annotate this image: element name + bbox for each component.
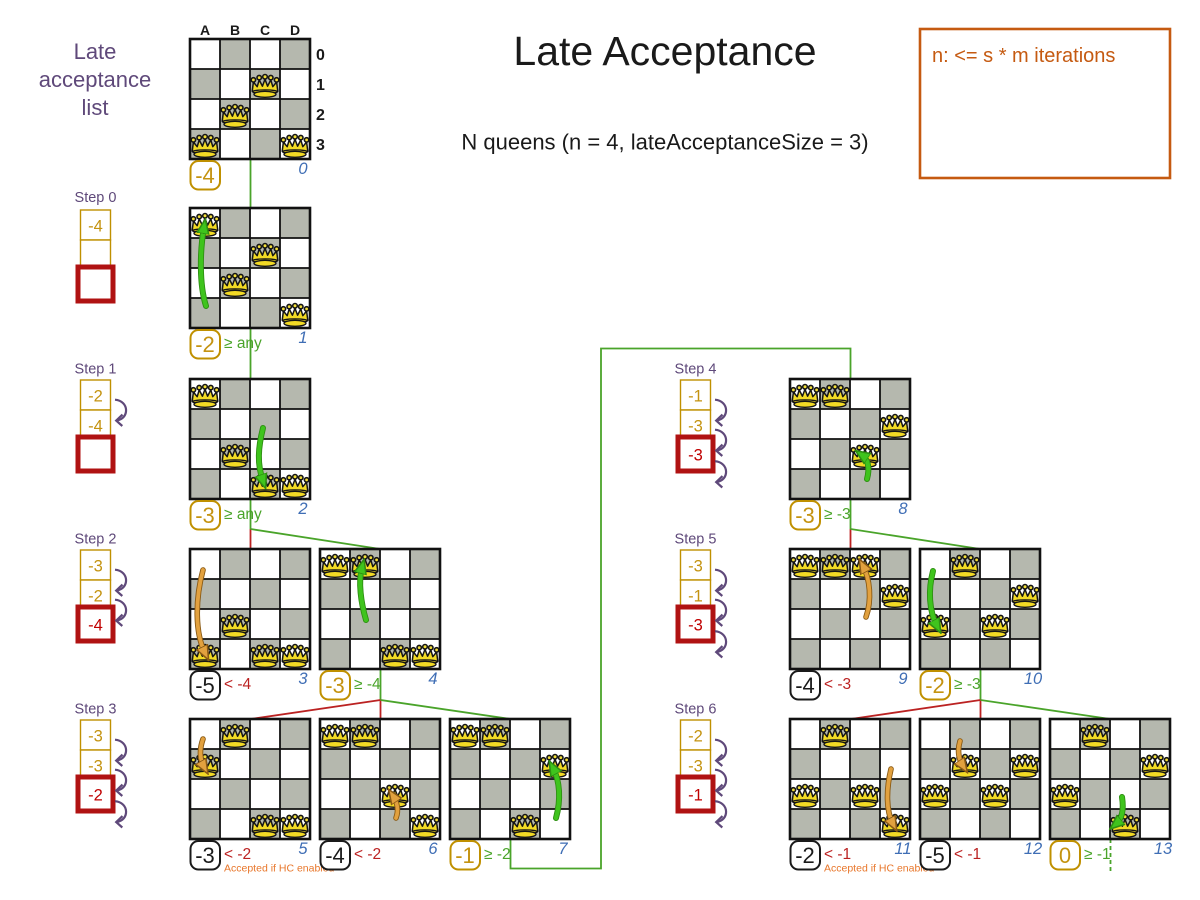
svg-text:10: 10: [1024, 670, 1043, 688]
svg-text:< -1: < -1: [954, 846, 981, 863]
svg-text:≥ any: ≥ any: [224, 506, 262, 523]
svg-text:-4: -4: [88, 218, 103, 236]
svg-text:4: 4: [428, 670, 437, 688]
svg-text:12: 12: [1024, 840, 1042, 858]
svg-text:Late: Late: [74, 39, 117, 64]
svg-text:2: 2: [316, 107, 325, 124]
svg-text:list: list: [82, 95, 109, 120]
svg-text:3: 3: [316, 137, 325, 154]
svg-text:< -4: < -4: [224, 676, 252, 693]
svg-text:-3: -3: [688, 558, 703, 576]
svg-text:Accepted if HC enabled: Accepted if HC enabled: [824, 863, 934, 875]
svg-text:n: <= s * m iterations: n: <= s * m iterations: [932, 45, 1115, 67]
svg-text:0: 0: [316, 47, 325, 64]
svg-text:-4: -4: [195, 163, 215, 188]
svg-text:≥ -2: ≥ -2: [484, 846, 511, 863]
svg-text:0: 0: [298, 160, 308, 178]
svg-text:< -3: < -3: [824, 676, 851, 693]
svg-text:-2: -2: [688, 728, 703, 746]
svg-text:D: D: [290, 22, 300, 38]
svg-text:≥ -3: ≥ -3: [824, 506, 851, 523]
svg-text:-2: -2: [88, 787, 103, 805]
svg-text:< -1: < -1: [824, 846, 851, 863]
svg-text:-3: -3: [195, 843, 215, 868]
svg-text:-4: -4: [88, 617, 103, 635]
svg-text:-1: -1: [688, 588, 703, 606]
svg-text:acceptance: acceptance: [39, 67, 152, 92]
svg-text:-2: -2: [195, 332, 215, 357]
svg-text:7: 7: [558, 840, 568, 858]
svg-text:-3: -3: [88, 558, 103, 576]
svg-text:Step 1: Step 1: [75, 362, 117, 378]
svg-text:-4: -4: [88, 418, 103, 436]
svg-text:-3: -3: [688, 758, 703, 776]
svg-text:0: 0: [1059, 843, 1071, 868]
svg-text:-3: -3: [88, 728, 103, 746]
svg-text:11: 11: [894, 840, 911, 858]
svg-text:-1: -1: [688, 787, 703, 805]
svg-text:Step 0: Step 0: [75, 190, 117, 206]
svg-text:13: 13: [1154, 840, 1173, 858]
svg-text:6: 6: [428, 840, 438, 858]
svg-text:-3: -3: [795, 503, 815, 528]
svg-text:-2: -2: [88, 388, 103, 406]
svg-text:5: 5: [298, 840, 308, 858]
svg-text:Step 2: Step 2: [75, 532, 117, 548]
svg-text:Step 4: Step 4: [675, 362, 717, 378]
svg-text:-4: -4: [795, 673, 815, 698]
svg-text:3: 3: [298, 670, 308, 688]
svg-text:< -2: < -2: [354, 846, 381, 863]
svg-text:≥ -3: ≥ -3: [954, 676, 981, 693]
svg-text:Step 6: Step 6: [675, 702, 717, 718]
svg-text:B: B: [230, 22, 240, 38]
svg-text:-2: -2: [88, 588, 103, 606]
svg-text:-3: -3: [195, 503, 215, 528]
svg-text:-2: -2: [795, 843, 815, 868]
svg-text:≥ any: ≥ any: [224, 335, 262, 352]
svg-text:Step 5: Step 5: [675, 532, 717, 548]
svg-text:-2: -2: [925, 673, 945, 698]
svg-text:C: C: [260, 22, 270, 38]
svg-text:1: 1: [298, 329, 307, 347]
svg-text:-3: -3: [688, 418, 703, 436]
svg-text:Accepted if HC enabled: Accepted if HC enabled: [224, 863, 334, 875]
svg-text:-1: -1: [688, 388, 703, 406]
svg-text:-5: -5: [925, 843, 945, 868]
svg-text:Late Acceptance: Late Acceptance: [513, 28, 816, 74]
svg-text:-3: -3: [88, 758, 103, 776]
svg-text:-5: -5: [195, 673, 215, 698]
svg-text:≥ -4: ≥ -4: [354, 676, 381, 693]
svg-text:Step 3: Step 3: [75, 702, 117, 718]
svg-text:< -2: < -2: [224, 846, 251, 863]
svg-text:-1: -1: [455, 843, 475, 868]
svg-text:2: 2: [297, 500, 307, 518]
svg-text:9: 9: [898, 670, 907, 688]
svg-text:8: 8: [898, 500, 908, 518]
svg-text:1: 1: [316, 77, 325, 94]
svg-text:-3: -3: [688, 447, 703, 465]
svg-text:-3: -3: [325, 673, 345, 698]
svg-text:≥ -1: ≥ -1: [1084, 846, 1111, 863]
svg-text:-4: -4: [325, 843, 345, 868]
svg-text:A: A: [200, 22, 210, 38]
svg-text:N queens (n = 4, lateAcceptanc: N queens (n = 4, lateAcceptanceSize = 3): [461, 130, 868, 155]
svg-text:-3: -3: [688, 617, 703, 635]
